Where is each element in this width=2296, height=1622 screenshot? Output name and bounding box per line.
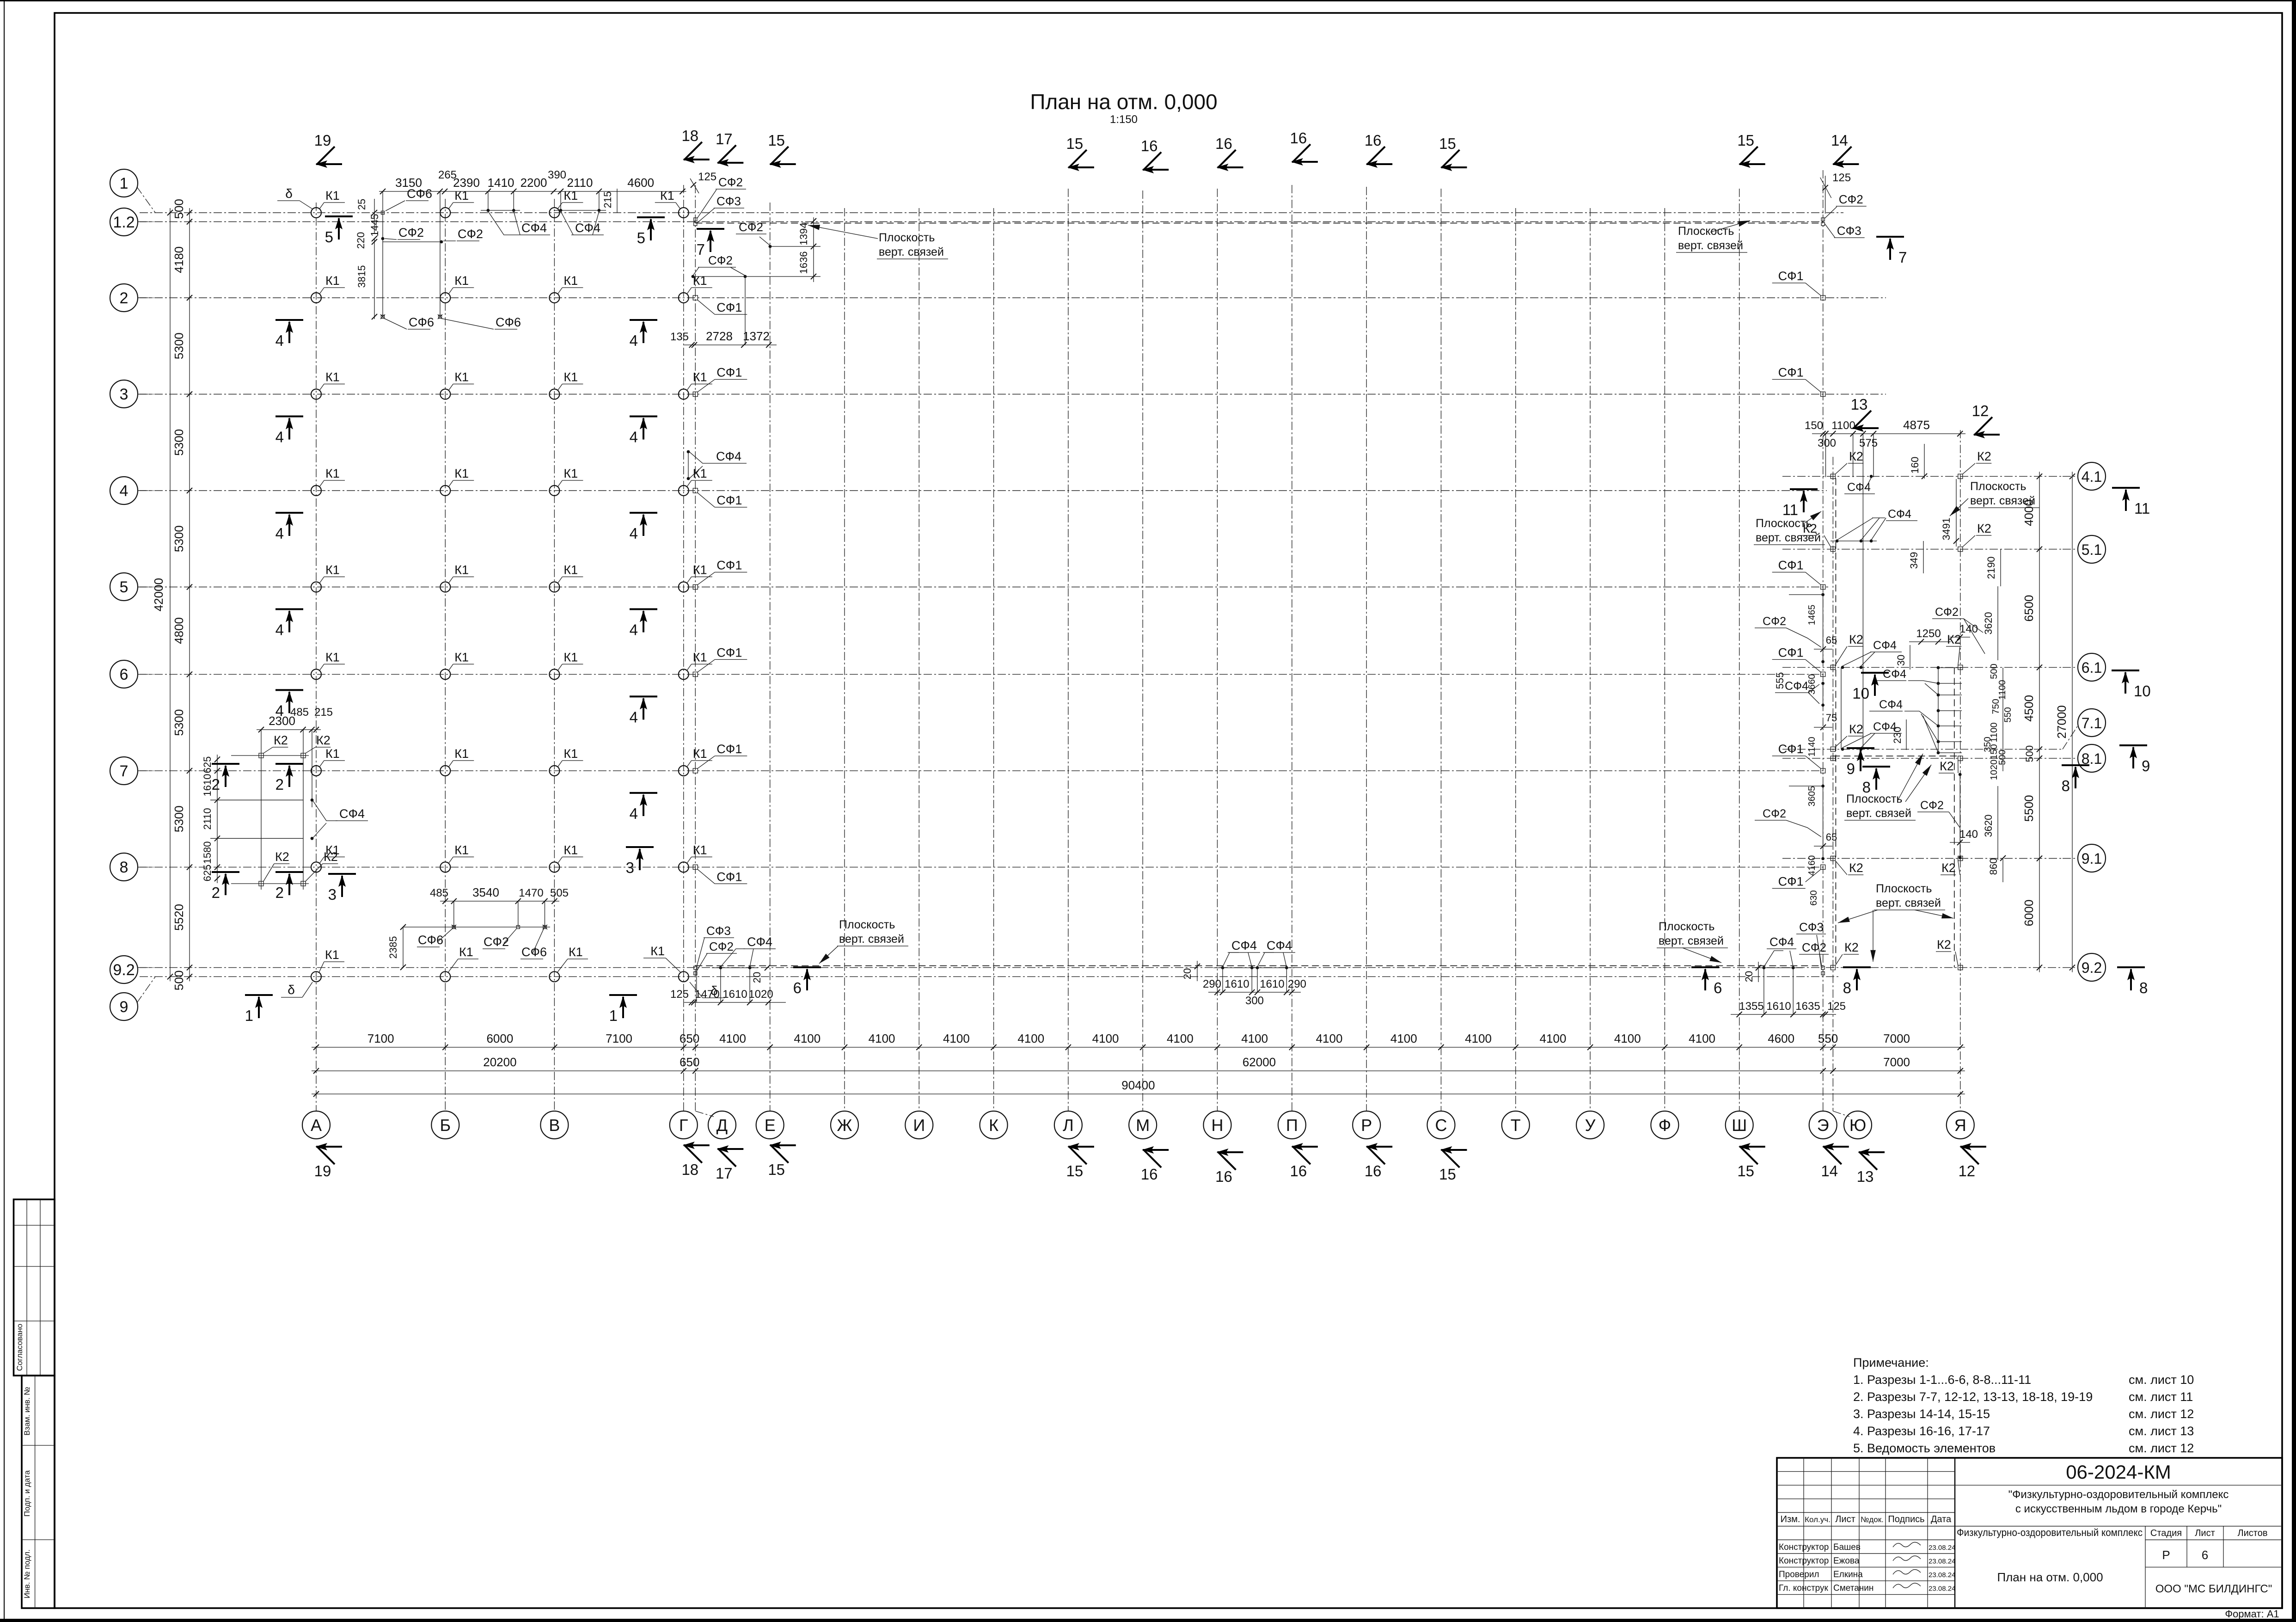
svg-text:К: К (989, 1116, 998, 1135)
svg-text:К1: К1 (660, 189, 674, 203)
svg-text:Проверил: Проверил (1779, 1570, 1819, 1579)
svg-text:СФ6: СФ6 (496, 315, 521, 329)
svg-text:650: 650 (680, 1032, 699, 1045)
svg-text:150: 150 (1805, 419, 1823, 432)
svg-text:11: 11 (1782, 501, 1798, 518)
svg-text:Дата: Дата (1931, 1514, 1952, 1524)
svg-text:Формат: А1: Формат: А1 (2225, 1608, 2279, 1620)
svg-text:см. лист 13: см. лист 13 (2129, 1424, 2194, 1438)
svg-text:630: 630 (1809, 890, 1819, 905)
svg-text:План на отм. 0,000: План на отм. 0,000 (1997, 1570, 2103, 1584)
svg-text:Ф: Ф (1659, 1116, 1671, 1135)
svg-text:2: 2 (276, 776, 284, 793)
svg-text:К2: К2 (1977, 522, 1991, 535)
svg-text:15: 15 (1439, 1166, 1456, 1183)
svg-text:К1: К1 (563, 650, 578, 664)
svg-text:290: 290 (1288, 978, 1306, 990)
svg-text:К1: К1 (693, 563, 707, 577)
svg-text:Кол.уч.: Кол.уч. (1805, 1515, 1831, 1524)
svg-text:7.1: 7.1 (2082, 715, 2102, 731)
svg-text:4: 4 (276, 525, 284, 542)
svg-text:30: 30 (1895, 655, 1907, 666)
svg-text:К2: К2 (1937, 938, 1951, 952)
svg-text:Взам. инв. №: Взам. инв. № (23, 1387, 31, 1435)
svg-text:СФ2: СФ2 (1839, 192, 1863, 206)
svg-text:1610: 1610 (1766, 1000, 1791, 1013)
svg-text:8: 8 (1843, 979, 1851, 996)
svg-text:Сметанин: Сметанин (1833, 1584, 1874, 1593)
svg-text:3620: 3620 (1983, 815, 1994, 837)
svg-text:12: 12 (1958, 1162, 1975, 1180)
svg-text:300: 300 (1818, 437, 1836, 449)
svg-text:1: 1 (245, 1007, 253, 1024)
svg-text:9: 9 (1847, 760, 1855, 777)
svg-text:4: 4 (630, 429, 638, 446)
svg-text:14: 14 (1821, 1162, 1838, 1180)
svg-text:15: 15 (1737, 1162, 1754, 1180)
svg-text:5300: 5300 (172, 525, 186, 552)
svg-text:8: 8 (1862, 779, 1871, 796)
svg-text:К2: К2 (1849, 861, 1863, 875)
svg-text:625: 625 (202, 756, 213, 774)
svg-text:1.2: 1.2 (113, 214, 135, 231)
svg-text:СФ1: СФ1 (716, 366, 742, 380)
svg-text:δ: δ (285, 186, 293, 201)
svg-text:П: П (1286, 1116, 1298, 1135)
svg-text:СФ1: СФ1 (1778, 742, 1804, 756)
svg-text:7: 7 (1898, 249, 1907, 266)
svg-text:В: В (549, 1116, 560, 1135)
svg-text:Физкультурно-оздоровительный к: Физкультурно-оздоровительный комплекс (1957, 1527, 2143, 1538)
svg-text:15: 15 (1439, 135, 1456, 152)
svg-text:1: 1 (120, 175, 129, 192)
svg-text:140: 140 (1959, 828, 1978, 841)
svg-text:СФ4: СФ4 (575, 221, 600, 235)
svg-text:4. Разрезы 16-16, 17-17: 4. Разрезы 16-16, 17-17 (1853, 1424, 1990, 1438)
svg-text:7: 7 (697, 241, 705, 258)
svg-text:К1: К1 (454, 370, 469, 384)
svg-text:К2: К2 (324, 850, 338, 864)
svg-text:К1: К1 (325, 467, 340, 480)
svg-text:550: 550 (1818, 1032, 1838, 1045)
svg-text:290: 290 (1203, 978, 1221, 990)
svg-text:1636: 1636 (798, 252, 809, 274)
svg-text:27000: 27000 (2055, 705, 2069, 738)
svg-text:верт. связей: верт. связей (839, 933, 904, 946)
svg-text:К2: К2 (274, 733, 288, 747)
svg-text:СФ3: СФ3 (706, 924, 731, 938)
svg-text:Т: Т (1511, 1116, 1521, 1135)
svg-text:Гл. конструк: Гл. конструк (1779, 1584, 1829, 1593)
svg-text:125: 125 (670, 988, 689, 1001)
svg-text:1610: 1610 (722, 988, 747, 1001)
svg-text:У: У (1585, 1116, 1596, 1135)
svg-text:Лист: Лист (1835, 1514, 1855, 1524)
svg-text:9: 9 (2142, 757, 2150, 774)
svg-text:К1: К1 (325, 370, 340, 384)
svg-text:15: 15 (1066, 135, 1084, 152)
svg-text:Примечание:: Примечание: (1853, 1356, 1929, 1370)
svg-text:349: 349 (1908, 552, 1920, 569)
svg-text:1. Разрезы 1-1...6-6, 8-8...11: 1. Разрезы 1-1...6-6, 8-8...11-11 (1853, 1373, 2031, 1387)
svg-text:1635: 1635 (1795, 1000, 1820, 1013)
svg-text:верт. связей: верт. связей (1678, 239, 1743, 252)
svg-text:650: 650 (680, 1055, 699, 1069)
svg-text:13: 13 (1857, 1168, 1874, 1185)
svg-text:СФ4: СФ4 (1883, 668, 1906, 681)
svg-text:11: 11 (2134, 500, 2150, 517)
svg-text:δ: δ (288, 983, 295, 997)
svg-text:3605: 3605 (1807, 786, 1817, 807)
svg-text:125: 125 (1832, 172, 1851, 184)
svg-text:К1: К1 (454, 189, 469, 203)
svg-text:220: 220 (355, 232, 367, 249)
svg-text:485: 485 (430, 887, 448, 899)
svg-text:23.08.24: 23.08.24 (1929, 1544, 1955, 1552)
svg-text:7100: 7100 (606, 1032, 632, 1045)
svg-text:4875: 4875 (1903, 418, 1930, 432)
svg-text:СФ2: СФ2 (708, 253, 733, 267)
svg-text:СФ4: СФ4 (521, 221, 547, 235)
svg-text:1394: 1394 (798, 223, 809, 246)
svg-text:75: 75 (1826, 712, 1837, 724)
svg-text:2: 2 (120, 289, 129, 307)
svg-text:К1: К1 (459, 945, 473, 959)
svg-text:СФ3: СФ3 (1799, 920, 1824, 934)
svg-text:К1: К1 (325, 189, 340, 203)
svg-text:4500: 4500 (2022, 695, 2036, 722)
svg-text:К1: К1 (325, 563, 340, 577)
svg-text:4100: 4100 (1465, 1032, 1492, 1045)
svg-text:20200: 20200 (483, 1055, 516, 1069)
svg-text:Б: Б (440, 1116, 451, 1135)
svg-text:СФ2: СФ2 (739, 220, 763, 234)
svg-text:Ж: Ж (837, 1116, 852, 1135)
svg-text:750: 750 (1991, 699, 2001, 714)
svg-text:4: 4 (276, 621, 284, 639)
svg-text:1610: 1610 (1260, 978, 1284, 990)
svg-text:1610: 1610 (1225, 978, 1249, 990)
svg-text:Подп. и дата: Подп. и дата (23, 1470, 31, 1517)
svg-text:4100: 4100 (943, 1032, 970, 1045)
svg-text:1355: 1355 (1739, 1000, 1763, 1013)
svg-text:9.2: 9.2 (113, 961, 135, 979)
svg-text:4100: 4100 (869, 1032, 895, 1045)
svg-text:20: 20 (1182, 968, 1193, 979)
svg-text:5: 5 (120, 578, 129, 596)
svg-text:500: 500 (2024, 745, 2035, 762)
svg-text:СФ4: СФ4 (716, 449, 741, 463)
svg-text:90400: 90400 (1121, 1078, 1155, 1092)
svg-text:4100: 4100 (1689, 1032, 1715, 1045)
svg-text:5: 5 (325, 228, 333, 246)
svg-text:1100: 1100 (1997, 680, 2008, 700)
svg-text:Изм.: Изм. (1781, 1514, 1800, 1524)
svg-text:12: 12 (1972, 402, 1989, 419)
svg-text:СФ4: СФ4 (1873, 639, 1897, 652)
svg-text:16: 16 (1215, 1168, 1232, 1185)
svg-text:06-2024-КМ: 06-2024-КМ (2066, 1461, 2171, 1483)
svg-text:ООО "МС БИЛДИНГС": ООО "МС БИЛДИНГС" (2155, 1583, 2272, 1595)
svg-text:верт. связей: верт. связей (1970, 494, 2035, 507)
svg-text:Подпись: Подпись (1888, 1514, 1924, 1524)
svg-text:4: 4 (276, 332, 284, 349)
svg-text:4: 4 (120, 482, 129, 500)
svg-text:К2: К2 (1849, 449, 1863, 463)
svg-text:СФ2: СФ2 (1763, 807, 1786, 820)
svg-text:4100: 4100 (719, 1032, 746, 1045)
svg-text:2190: 2190 (1985, 557, 1997, 579)
svg-text:СФ4: СФ4 (1888, 508, 1911, 521)
svg-text:СФ2: СФ2 (718, 175, 743, 189)
svg-text:Ш: Ш (1732, 1116, 1747, 1135)
svg-text:Плоскость: Плоскость (1659, 920, 1714, 933)
svg-text:3: 3 (328, 886, 337, 903)
svg-text:К1: К1 (454, 747, 469, 761)
svg-text:4100: 4100 (1316, 1032, 1343, 1045)
svg-text:215: 215 (602, 191, 613, 209)
svg-text:3620: 3620 (1983, 612, 1994, 635)
svg-text:СФ1: СФ1 (716, 301, 742, 314)
svg-text:верт. связей: верт. связей (1876, 897, 1941, 909)
svg-text:СФ6: СФ6 (521, 945, 547, 959)
svg-text:СФ1: СФ1 (716, 742, 742, 756)
svg-text:Р: Р (2162, 1548, 2170, 1562)
svg-text:10: 10 (1852, 685, 1869, 702)
svg-text:Плоскость: Плоскость (1678, 225, 1734, 238)
svg-text:2: 2 (212, 884, 220, 901)
svg-text:125: 125 (698, 171, 716, 183)
svg-text:СФ2: СФ2 (1802, 940, 1826, 954)
svg-text:4: 4 (630, 621, 638, 639)
svg-text:4100: 4100 (1241, 1032, 1268, 1045)
svg-text:К2: К2 (1977, 449, 1991, 463)
svg-text:Лист: Лист (2195, 1528, 2215, 1538)
svg-text:4180: 4180 (172, 246, 186, 273)
svg-text:Э: Э (1817, 1116, 1829, 1135)
svg-text:СФ6: СФ6 (409, 315, 434, 329)
svg-text:5. Ведомость элементов: 5. Ведомость элементов (1853, 1441, 1996, 1455)
svg-text:Елкина: Елкина (1833, 1570, 1863, 1579)
svg-text:верт. связей: верт. связей (1659, 934, 1724, 947)
svg-text:К1: К1 (325, 650, 340, 664)
svg-text:К1: К1 (454, 843, 469, 857)
svg-text:125: 125 (1827, 1000, 1846, 1013)
svg-text:160: 160 (1909, 457, 1921, 474)
svg-text:К1: К1 (693, 650, 707, 664)
svg-text:6: 6 (120, 666, 129, 683)
svg-text:5300: 5300 (172, 429, 186, 456)
svg-text:см. лист 10: см. лист 10 (2129, 1373, 2194, 1387)
svg-text:СФ1: СФ1 (1778, 269, 1804, 283)
svg-text:Я: Я (1954, 1116, 1966, 1135)
svg-text:6000: 6000 (2022, 900, 2036, 927)
svg-text:верт. связей: верт. связей (879, 246, 944, 258)
svg-text:25: 25 (356, 199, 367, 210)
svg-text:М: М (1136, 1116, 1150, 1135)
svg-text:18: 18 (681, 127, 698, 144)
svg-text:К1: К1 (563, 843, 578, 857)
svg-text:3: 3 (626, 859, 634, 876)
svg-text:К2: К2 (1849, 722, 1863, 736)
svg-text:4: 4 (630, 525, 638, 542)
svg-text:5.1: 5.1 (2082, 541, 2102, 558)
svg-text:К2: К2 (275, 850, 289, 864)
svg-text:23.08.24: 23.08.24 (1929, 1585, 1955, 1593)
svg-text:Плоскость: Плоскость (839, 918, 895, 931)
svg-text:6000: 6000 (486, 1032, 513, 1045)
svg-text:К1: К1 (650, 944, 665, 958)
svg-text:К1: К1 (325, 274, 340, 288)
svg-text:1470: 1470 (695, 988, 719, 1001)
svg-text:СФ2: СФ2 (1920, 799, 1944, 812)
svg-text:6: 6 (1714, 979, 1722, 996)
svg-text:К1: К1 (563, 274, 578, 288)
svg-text:см. лист 11: см. лист 11 (2129, 1390, 2193, 1404)
svg-text:Листов: Листов (2238, 1528, 2268, 1538)
svg-text:42000: 42000 (152, 578, 165, 611)
svg-text:Плоскость: Плоскость (1970, 480, 2026, 493)
svg-text:4160: 4160 (1807, 855, 1817, 876)
svg-text:550: 550 (2003, 707, 2013, 722)
svg-text:см. лист 12: см. лист 12 (2129, 1441, 2194, 1455)
svg-text:СФ1: СФ1 (716, 645, 742, 659)
svg-text:300: 300 (1245, 995, 1264, 1007)
svg-text:СФ4: СФ4 (747, 935, 772, 949)
svg-text:Инв. № подл.: Инв. № подл. (23, 1549, 31, 1598)
svg-text:15: 15 (768, 1161, 785, 1178)
svg-text:500: 500 (172, 199, 186, 219)
svg-text:4: 4 (630, 332, 638, 349)
svg-text:3540: 3540 (472, 885, 499, 899)
svg-text:Г: Г (679, 1116, 688, 1135)
svg-text:4100: 4100 (1390, 1032, 1417, 1045)
svg-text:К1: К1 (693, 274, 707, 288)
svg-text:4100: 4100 (1614, 1032, 1641, 1045)
svg-text:Плоскость: Плоскость (1876, 882, 1932, 895)
svg-text:505: 505 (550, 887, 569, 899)
svg-text:СФ1: СФ1 (1778, 559, 1804, 572)
svg-text:с искусственным льдом в городе: с искусственным льдом в городе Керчь" (2015, 1503, 2222, 1515)
svg-text:Согласовано: Согласовано (15, 1324, 24, 1371)
svg-text:Л: Л (1063, 1116, 1074, 1135)
svg-text:4: 4 (276, 702, 284, 719)
svg-text:17: 17 (716, 130, 733, 147)
svg-text:4600: 4600 (1768, 1032, 1794, 1045)
svg-text:К1: К1 (563, 370, 578, 384)
svg-text:2: 2 (276, 884, 284, 901)
svg-text:3660: 3660 (1807, 674, 1817, 695)
svg-text:65: 65 (1826, 831, 1837, 843)
svg-text:СФ2: СФ2 (398, 226, 424, 240)
svg-text:4: 4 (630, 805, 638, 822)
svg-text:СФ1: СФ1 (716, 493, 742, 507)
svg-text:4800: 4800 (172, 617, 186, 644)
svg-text:500: 500 (172, 971, 186, 990)
svg-text:1: 1 (609, 1007, 618, 1024)
svg-text:2385: 2385 (387, 936, 399, 959)
svg-text:К1: К1 (693, 370, 707, 384)
svg-text:1580: 1580 (202, 842, 213, 864)
svg-text:4: 4 (276, 429, 284, 446)
svg-text:"Физкультурно-оздоровительный: "Физкультурно-оздоровительный комплекс (2008, 1488, 2229, 1501)
svg-text:Конструктор: Конструктор (1779, 1556, 1829, 1566)
svg-text:Башев: Башев (1833, 1542, 1861, 1552)
svg-text:65: 65 (1826, 634, 1837, 646)
svg-text:СФ4: СФ4 (339, 807, 365, 821)
svg-text:16: 16 (1365, 132, 1382, 149)
svg-text:К2: К2 (1844, 940, 1859, 954)
svg-text:18: 18 (681, 1161, 698, 1178)
svg-text:Ю: Ю (1849, 1116, 1866, 1135)
svg-text:9.1: 9.1 (2082, 850, 2102, 867)
svg-text:К1: К1 (454, 467, 469, 480)
svg-text:1140: 1140 (1807, 737, 1817, 756)
svg-text:Плоскость: Плоскость (1846, 793, 1902, 805)
svg-text:23.08.24: 23.08.24 (1929, 1571, 1955, 1579)
svg-text:135: 135 (670, 331, 689, 343)
svg-text:230: 230 (1892, 727, 1903, 744)
svg-text:8: 8 (2139, 979, 2148, 996)
svg-text:Плоскость: Плоскость (879, 231, 935, 244)
svg-text:верт. связей: верт. связей (1846, 807, 1911, 820)
svg-text:9.2: 9.2 (2082, 959, 2102, 976)
svg-text:1100: 1100 (1831, 419, 1855, 432)
svg-text:СФ4: СФ4 (1847, 481, 1871, 494)
svg-text:500: 500 (1989, 664, 1999, 679)
svg-text:СФ4: СФ4 (1231, 939, 1257, 952)
svg-text:СФ1: СФ1 (716, 559, 742, 572)
svg-text:19: 19 (314, 1162, 331, 1180)
svg-text:3815: 3815 (356, 265, 367, 288)
svg-text:14: 14 (1831, 132, 1848, 149)
svg-text:СФ1: СФ1 (1778, 366, 1804, 380)
svg-text:62000: 62000 (1243, 1055, 1276, 1069)
svg-text:К1: К1 (325, 948, 339, 962)
svg-text:7000: 7000 (1883, 1055, 1910, 1069)
svg-text:16: 16 (1290, 129, 1307, 147)
svg-text:К1: К1 (454, 563, 469, 577)
svg-text:Е: Е (765, 1116, 776, 1135)
svg-text:К1: К1 (563, 467, 578, 480)
svg-text:5: 5 (637, 229, 645, 246)
svg-text:К1: К1 (563, 747, 578, 761)
svg-text:СФ1: СФ1 (1778, 645, 1804, 659)
svg-text:К1: К1 (325, 747, 340, 761)
svg-text:4100: 4100 (1017, 1032, 1044, 1045)
svg-text:5300: 5300 (172, 709, 186, 736)
svg-text:СФ1: СФ1 (1778, 874, 1804, 888)
svg-text:555: 555 (1774, 672, 1786, 689)
svg-text:485: 485 (290, 706, 309, 719)
svg-text:К2: К2 (316, 733, 331, 747)
svg-text:5500: 5500 (2022, 795, 2036, 822)
svg-text:16: 16 (1141, 1166, 1158, 1183)
svg-text:К1: К1 (454, 274, 469, 288)
svg-text:СФ6: СФ6 (407, 187, 432, 201)
svg-text:СФ4: СФ4 (1785, 680, 1808, 693)
svg-text:И: И (913, 1116, 925, 1135)
svg-text:3491: 3491 (1941, 518, 1952, 541)
svg-text:4100: 4100 (1167, 1032, 1194, 1045)
svg-text:Ежова: Ежова (1833, 1556, 1860, 1566)
svg-text:4100: 4100 (794, 1032, 820, 1045)
svg-text:СФ4: СФ4 (1267, 939, 1292, 952)
svg-text:С: С (1435, 1116, 1447, 1135)
svg-text:1250: 1250 (1916, 627, 1941, 640)
svg-text:5520: 5520 (172, 904, 186, 931)
svg-text:20: 20 (751, 972, 763, 983)
